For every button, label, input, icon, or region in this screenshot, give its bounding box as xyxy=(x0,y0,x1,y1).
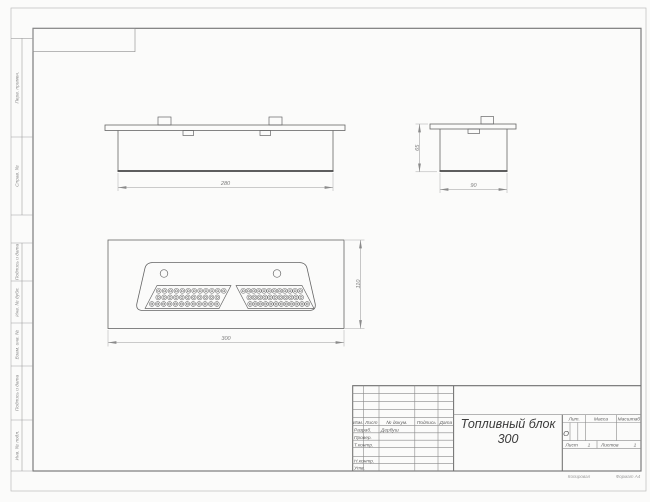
perforation-ring xyxy=(306,303,308,305)
perforation-ring xyxy=(151,303,153,305)
tb-header-sign: Подпись xyxy=(417,420,437,426)
perforation-ring xyxy=(270,303,272,305)
perforation-ring xyxy=(179,302,184,307)
perforation-ring xyxy=(293,288,298,293)
plan-hole-left xyxy=(160,270,168,278)
tb-lit-value: О xyxy=(563,429,569,438)
perforation-ring xyxy=(272,288,277,293)
perforation-ring xyxy=(175,290,177,292)
perforation-ring xyxy=(275,303,277,305)
perforation-ring xyxy=(149,302,154,307)
perforation-ring xyxy=(300,296,302,298)
perforation-ring xyxy=(268,290,270,292)
tb-header-izm: Изм. xyxy=(353,420,363,426)
top-left-box xyxy=(33,28,135,51)
margin-label-perv-primen: Перв. примен. xyxy=(14,72,20,104)
perforation-ring xyxy=(289,290,291,292)
left-margin-columns: Перв. примен. Справ. № Подпись и дата Ин… xyxy=(11,38,33,471)
side-slot xyxy=(468,129,480,134)
perforation-ring xyxy=(289,302,294,307)
perforation-ring xyxy=(298,288,303,293)
perforation-ring xyxy=(173,302,178,307)
perforation-ring xyxy=(273,290,275,292)
perforation-ring xyxy=(258,290,260,292)
margin-label-podpis-data-1: Подпись и дата xyxy=(15,244,21,281)
perforation-ring xyxy=(168,295,173,300)
perforation-ring xyxy=(278,290,280,292)
perforation-ring xyxy=(186,303,188,305)
tb-header-list: Лист xyxy=(364,420,377,426)
perforation-ring xyxy=(269,296,271,298)
perforation-ring xyxy=(262,295,267,300)
perforation-ring xyxy=(215,295,220,300)
perforation-ring xyxy=(252,295,257,300)
perforation-ring xyxy=(180,288,185,293)
perforation-ring xyxy=(203,295,208,300)
perforation-ring xyxy=(191,302,196,307)
perforation-ring xyxy=(280,303,282,305)
perforation-ring xyxy=(221,288,226,293)
perforation-ring xyxy=(204,288,209,293)
front-tab-left xyxy=(158,117,171,125)
tb-header-date: Дата xyxy=(438,420,452,426)
perforation-ring xyxy=(285,303,287,305)
margin-label-sprav-no: Справ. № xyxy=(15,165,21,187)
perforation-ring xyxy=(257,295,262,300)
perforation-ring xyxy=(247,295,252,300)
tb-row-utv-label: Утв. xyxy=(354,466,365,472)
perforation-ring xyxy=(181,290,183,292)
tb-row-nkontr-label: Н.контр. xyxy=(354,459,374,465)
side-view: 65 90 xyxy=(415,117,516,194)
front-slot-right xyxy=(260,131,271,136)
perforation-ring xyxy=(293,295,298,300)
plan-dim-300: 300 xyxy=(221,336,231,342)
perforation-ring xyxy=(197,295,202,300)
perforation-ring xyxy=(274,302,279,307)
perforation-ring xyxy=(170,290,172,292)
perforation-ring xyxy=(205,290,207,292)
perforation-ring xyxy=(223,290,225,292)
perforation-ring xyxy=(259,296,261,298)
perforation-ring xyxy=(203,302,208,307)
perforation-ring xyxy=(300,302,305,307)
perforation-ring xyxy=(217,290,219,292)
top-view: 300 110 xyxy=(108,240,365,347)
tb-header-docnum: № докум. xyxy=(386,420,407,426)
tb-scale-label: Масштаб xyxy=(618,417,641,423)
perforation-ring xyxy=(181,296,183,298)
perforation-ring xyxy=(299,290,301,292)
perforation-ring xyxy=(277,288,282,293)
perforation-ring xyxy=(199,290,201,292)
side-tab xyxy=(481,117,494,125)
perforation-ring xyxy=(180,303,182,305)
perforation-ring xyxy=(256,288,261,293)
perforation-ring xyxy=(179,295,184,300)
perforation-ring xyxy=(199,296,201,298)
margin-label-inv-podl: Инв. № подл. xyxy=(15,431,21,461)
perforation-ring xyxy=(296,303,298,305)
perforation-ring xyxy=(174,303,176,305)
perforation-ring xyxy=(284,302,289,307)
perforation-ring xyxy=(251,288,256,293)
perforation-ring xyxy=(264,296,266,298)
perforation-ring xyxy=(248,302,253,307)
perforation-ring xyxy=(263,302,268,307)
perforation-ring xyxy=(192,303,194,305)
perforation-ring xyxy=(193,296,195,298)
perforation-ring xyxy=(242,290,244,292)
perforation-ring xyxy=(249,303,251,305)
doc-name-line2: 300 xyxy=(498,432,519,446)
perforation-ring xyxy=(209,288,214,293)
perforation-ring xyxy=(186,288,191,293)
drawing-sheet: Перв. примен. Справ. № Подпись и дата Ин… xyxy=(0,0,650,502)
perforation-ring xyxy=(305,302,310,307)
front-flange xyxy=(105,125,345,131)
perforation-ring xyxy=(204,303,206,305)
perforation-ring xyxy=(168,288,173,293)
tb-row-razrab-name: Дербуш xyxy=(380,428,399,434)
footer-notes: Копировал Формат А4 xyxy=(568,474,641,479)
perforation-ring xyxy=(265,303,267,305)
perforation-ring xyxy=(262,288,267,293)
perforation-ring xyxy=(187,296,189,298)
perforation-ring xyxy=(191,295,196,300)
perforation-ring xyxy=(157,303,159,305)
tb-sheet-value: 1 xyxy=(588,443,591,449)
perforation-ring xyxy=(274,296,276,298)
tb-lit-label: Лит. xyxy=(568,417,580,423)
perforation-ring xyxy=(197,302,202,307)
perforation-ring xyxy=(258,302,263,307)
perforation-ring xyxy=(288,295,293,300)
side-flange xyxy=(430,124,516,129)
perforation-ring xyxy=(164,290,166,292)
front-slot-left xyxy=(183,131,194,136)
perforation-ring xyxy=(247,290,249,292)
perforation-ring xyxy=(209,295,214,300)
front-tab-right xyxy=(269,117,282,125)
margin-label-inv-dubl: Инв. № дубл. xyxy=(15,287,21,317)
front-view: 280 xyxy=(105,117,345,191)
perforation-ring xyxy=(215,288,220,293)
perforation-ring xyxy=(268,302,273,307)
perforation-ring xyxy=(253,296,255,298)
perforation-ring xyxy=(211,290,213,292)
perforation-ring xyxy=(301,303,303,305)
perforation-ring xyxy=(287,288,292,293)
perforation-ring xyxy=(253,302,258,307)
perforation-ring xyxy=(216,303,218,305)
perforation-ring xyxy=(214,302,219,307)
perforation-ring xyxy=(290,296,292,298)
perforation-ring xyxy=(174,295,179,300)
plan-hole-right xyxy=(273,270,281,278)
perforation-ring xyxy=(285,296,287,298)
perforation-ring xyxy=(162,295,167,300)
perforation-ring xyxy=(210,303,212,305)
perforation-ring xyxy=(283,295,288,300)
tb-sheets-label: Листов xyxy=(600,443,619,449)
perforation-ring xyxy=(204,296,206,298)
perforation-ring xyxy=(187,290,189,292)
perforation-ring xyxy=(158,290,160,292)
perforation-ring xyxy=(248,296,250,298)
perforation-ring xyxy=(185,302,190,307)
tb-row-tkontr-label: Т.контр. xyxy=(354,442,373,448)
perforation-ring xyxy=(259,303,261,305)
perforation-ring xyxy=(198,303,200,305)
perforation-ring xyxy=(294,302,299,307)
perforation-ring xyxy=(263,290,265,292)
tb-mass-label: Масса xyxy=(594,417,609,423)
perforation-ring xyxy=(253,290,255,292)
perforation-ring xyxy=(241,288,246,293)
perforation-ring xyxy=(167,302,172,307)
front-dim-280: 280 xyxy=(220,181,231,187)
perforation-ring xyxy=(279,296,281,298)
front-body-sides xyxy=(118,131,333,172)
perforation-ring xyxy=(279,302,284,307)
margin-label-podpis-data-2: Подпись и дата xyxy=(15,375,21,412)
perforation-ring xyxy=(157,296,159,298)
perforation-ring xyxy=(282,288,287,293)
perforation-ring xyxy=(169,303,171,305)
perforation-ring xyxy=(175,296,177,298)
side-dim-90: 90 xyxy=(470,183,477,189)
plan-outer-rect xyxy=(108,240,344,329)
perforation-ring xyxy=(210,296,212,298)
plan-dim-110: 110 xyxy=(356,279,362,289)
perforation-ring xyxy=(174,288,179,293)
footer-copied: Копировал xyxy=(568,474,591,479)
perforation-ring xyxy=(156,295,161,300)
perforation-ring xyxy=(294,290,296,292)
perforation-ring xyxy=(163,303,165,305)
tb-sheet-label: Лист xyxy=(565,443,578,449)
perforation-ring xyxy=(284,290,286,292)
perforation-ring xyxy=(216,296,218,298)
tb-row-razrab-label: Разраб. xyxy=(354,428,371,434)
inner-frame xyxy=(33,28,641,471)
title-block: Изм. Лист № докум. Подпись Дата Разраб. … xyxy=(353,386,641,472)
tb-sheets-value: 1 xyxy=(634,443,637,449)
perforation-ring xyxy=(169,296,171,298)
perforation-ring xyxy=(161,302,166,307)
perforation-ring xyxy=(295,296,297,298)
perforation-ring xyxy=(156,288,161,293)
perforation-ring xyxy=(192,288,197,293)
side-body-sides xyxy=(440,129,507,171)
perforation-ring xyxy=(291,303,293,305)
perforation-ring xyxy=(299,295,304,300)
perforation-ring xyxy=(268,295,273,300)
perforation-ring xyxy=(185,295,190,300)
footer-format: Формат А4 xyxy=(616,474,641,479)
perforation-ring xyxy=(254,303,256,305)
perforation-ring xyxy=(162,288,167,293)
drawing-canvas: Перв. примен. Справ. № Подпись и дата Ин… xyxy=(0,0,650,502)
margin-label-vzam-inv: Взам. инв. № xyxy=(15,330,21,360)
perforation-ring xyxy=(278,295,283,300)
perforation-ring xyxy=(193,290,195,292)
perforation-ring xyxy=(246,288,251,293)
perforation-ring xyxy=(267,288,272,293)
perforation-ring xyxy=(163,296,165,298)
perforation-ring xyxy=(273,295,278,300)
perforation-ring xyxy=(155,302,160,307)
perforation-holes xyxy=(149,288,309,306)
doc-name-line1: Топливный блок xyxy=(461,417,557,431)
perforation-ring xyxy=(198,288,203,293)
side-dim-65: 65 xyxy=(415,144,421,151)
tb-row-prover-label: Провер. xyxy=(354,435,372,441)
perforation-ring xyxy=(208,302,213,307)
